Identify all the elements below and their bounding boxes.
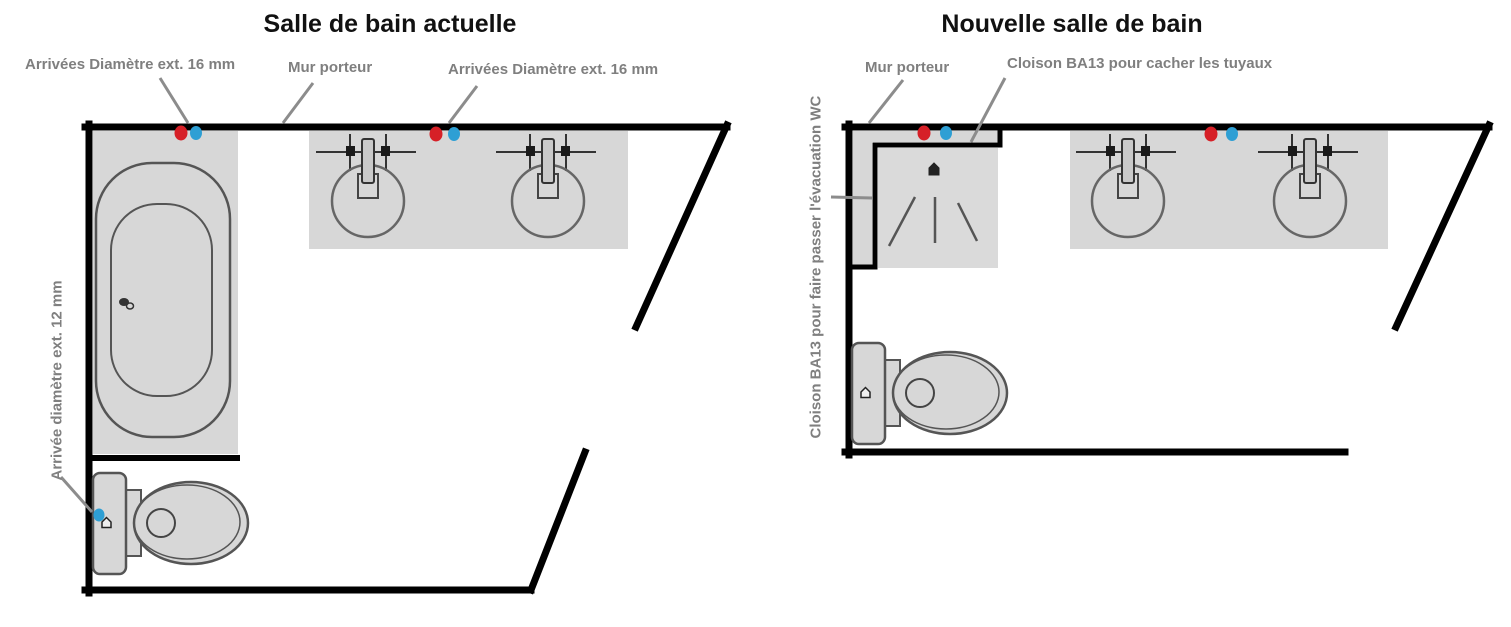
sink-counter-left-plan	[309, 131, 628, 249]
pointer-line	[283, 83, 313, 123]
ba13-band-left	[853, 142, 872, 267]
label-partition-hide-pipes: Cloison BA13 pour cacher les tuyaux	[1007, 55, 1272, 72]
wc-water-dot	[94, 509, 105, 522]
pointer-line	[160, 78, 188, 123]
label-supply-12-vertical: Arrivée diamètre ext. 12 mm	[49, 281, 66, 481]
pointer-line	[449, 86, 477, 123]
pointer-line	[869, 80, 903, 123]
cold-water-dot	[940, 126, 952, 140]
label-load-bearing-wall-right: Mur porteur	[865, 59, 949, 76]
cold-water-dot	[1226, 127, 1238, 141]
floor-plan-drawing	[0, 0, 1511, 627]
cold-water-dot	[448, 127, 460, 141]
toilet-icon	[93, 473, 248, 574]
pointer-line	[831, 197, 872, 198]
hot-water-dot	[1205, 127, 1218, 142]
label-supply-16-right: Arrivées Diamètre ext. 16 mm	[448, 61, 658, 78]
left-plan-title: Salle de bain actuelle	[260, 10, 520, 39]
cold-water-dot	[190, 126, 202, 140]
lower-diagonal-wall	[531, 452, 585, 590]
right-plan-title: Nouvelle salle de bain	[938, 10, 1206, 39]
upper-diagonal-wall	[636, 125, 727, 327]
left-plan	[61, 78, 727, 593]
label-supply-16-left: Arrivées Diamètre ext. 16 mm	[25, 56, 235, 73]
label-partition-wc-vertical: Cloison BA13 pour faire passer l'évacuat…	[808, 99, 825, 439]
bathroom-plans-diagram: Salle de bain actuelle Nouvelle salle de…	[0, 0, 1511, 627]
hot-water-dot	[175, 126, 188, 141]
toilet-icon	[852, 343, 1007, 444]
right-plan	[831, 78, 1489, 455]
hot-water-dot	[918, 126, 931, 141]
shower-area	[878, 148, 998, 268]
label-load-bearing-wall-left: Mur porteur	[288, 59, 372, 76]
hot-water-dot	[430, 127, 443, 142]
diagonal-wall	[1396, 125, 1489, 327]
bathtub-area	[93, 131, 238, 454]
